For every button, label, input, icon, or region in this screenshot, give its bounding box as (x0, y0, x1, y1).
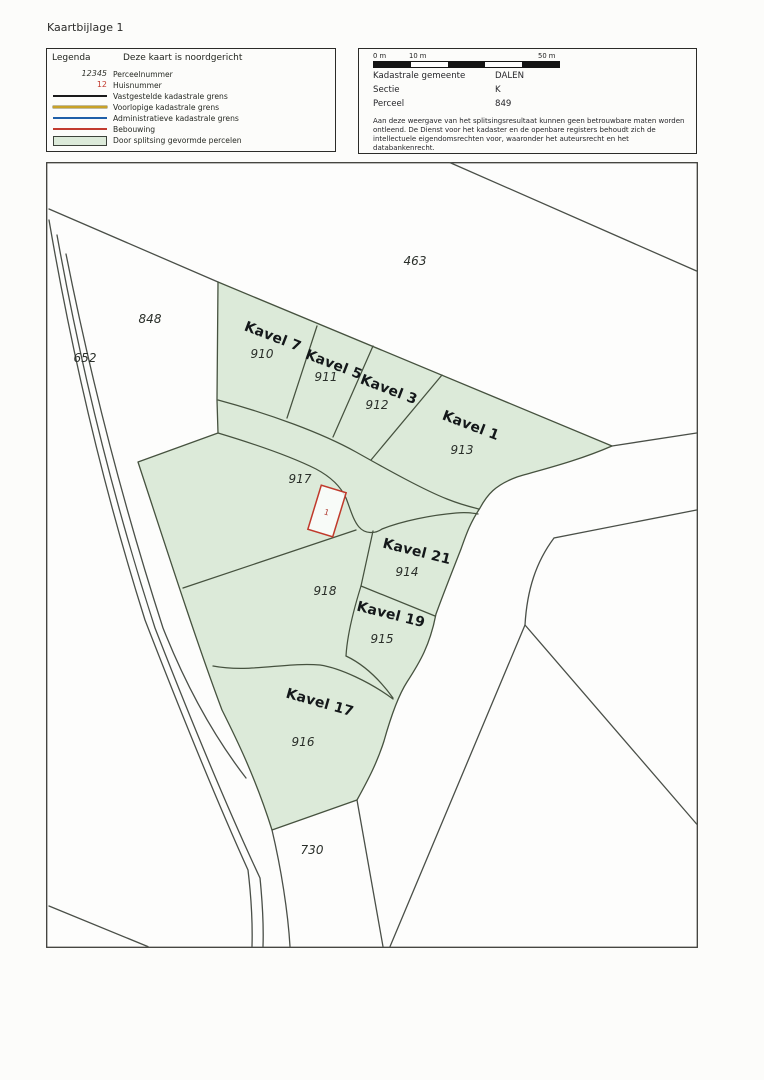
disclaimer-text: Aan deze weergave van het splitsingsresu… (373, 117, 685, 153)
document-title: Kaartbijlage 1 (47, 21, 123, 34)
field-perceel: Perceel 849 (373, 99, 404, 109)
parcel-label-913: 913 (451, 443, 474, 457)
parcel-label-912: 912 (366, 398, 389, 412)
scale-bar: 0 m 10 m 50 m (373, 52, 563, 68)
legend-title: Legenda (52, 53, 91, 63)
scale-label-0m: 0 m (373, 52, 386, 60)
parcel-label-848: 848 (139, 312, 162, 326)
cadastral-map: 1 463 848 652 730 917 918 Kavel 7 910 Ka… (46, 162, 698, 948)
legend-row-voorlopige-grens: Voorlopige kadastrale grens (47, 102, 333, 113)
parcel-label-917: 917 (289, 472, 312, 486)
parcel-label-918: 918 (314, 584, 337, 598)
legend-row-administratieve-grens: Administratieve kadastrale grens (47, 113, 333, 124)
value-perceel: 849 (495, 99, 511, 109)
parcel-label-914: 914 (396, 565, 419, 579)
parcel-number-sample: 12345 (53, 69, 107, 80)
parcel-label-652: 652 (74, 351, 97, 365)
legend-row-perceelnummer: 12345 Perceelnummer (47, 69, 333, 80)
legend-row-bebouwing: Bebouwing (47, 124, 333, 135)
provisional-boundary-line-icon (53, 102, 107, 113)
map-info-box: 0 m 10 m 50 m Kadastrale gemeente DALEN … (358, 48, 697, 154)
legend-row-gevormde-percelen: Door splitsing gevormde percelen (47, 135, 333, 146)
parcel-label-463: 463 (404, 254, 427, 268)
parcel-label-910: 910 (251, 347, 274, 361)
scale-bar-segments (373, 61, 560, 68)
administrative-boundary-line-icon (53, 113, 107, 124)
value-sectie: K (495, 85, 501, 95)
scale-label-50m: 50 m (538, 52, 555, 60)
parcel-label-916: 916 (292, 735, 315, 749)
parcel-label-915: 915 (371, 632, 394, 646)
established-boundary-line-icon (53, 91, 107, 102)
building-line-icon (53, 124, 107, 135)
field-sectie: Sectie K (373, 85, 400, 95)
house-number-sample: 12 (53, 80, 107, 91)
legend-box: Legenda Deze kaart is noordgericht 12345… (46, 48, 336, 152)
parcel-label-730: 730 (301, 843, 324, 857)
legend-row-vastgestelde-grens: Vastgestelde kadastrale grens (47, 91, 333, 102)
legend-row-huisnummer: 12 Huisnummer (47, 80, 333, 91)
scanned-cadastral-document: { "page": { "title": "Kaartbijlage 1" },… (0, 0, 764, 1080)
value-gemeente: DALEN (495, 71, 524, 81)
split-parcel-area-icon (53, 135, 107, 146)
field-kadastrale-gemeente: Kadastrale gemeente DALEN (373, 71, 465, 81)
parcel-label-911: 911 (315, 370, 338, 384)
scale-label-10m: 10 m (409, 52, 426, 60)
north-orientation-note: Deze kaart is noordgericht (123, 53, 242, 63)
